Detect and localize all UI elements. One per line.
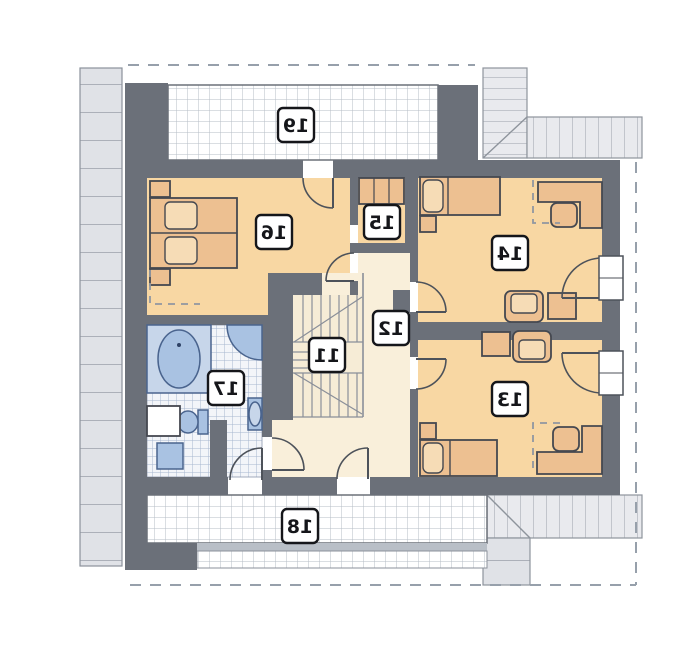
room-label-19-text: 19 bbox=[283, 115, 309, 137]
window-room14 bbox=[599, 256, 623, 300]
roof-ridge-strip-left bbox=[80, 68, 122, 566]
hall-floor-bottom bbox=[272, 417, 410, 477]
room-label-15-text: 15 bbox=[369, 212, 395, 234]
wall-hall-room14-b bbox=[410, 312, 418, 357]
pillow-room16-b bbox=[165, 237, 197, 264]
wall-terrace-upper-right bbox=[438, 85, 478, 160]
bathtub-drain bbox=[177, 343, 181, 347]
armchair-seat-room13 bbox=[519, 340, 545, 359]
room-label-13-text: 13 bbox=[497, 389, 523, 411]
wall-bottom-b bbox=[262, 477, 337, 495]
room-label-16: 16 bbox=[256, 215, 292, 249]
room-label-14: 14 bbox=[492, 236, 528, 270]
room-label-12-text: 12 bbox=[378, 318, 404, 340]
side-table-room13 bbox=[482, 332, 510, 356]
room-label-11: 11 bbox=[309, 338, 345, 372]
pillow-room13 bbox=[423, 443, 443, 473]
terrace-step-edge bbox=[197, 543, 487, 551]
toilet-tank bbox=[198, 410, 208, 434]
floor-plan-page: 19 16 15 14 12 11 17 13 bbox=[0, 0, 700, 665]
wall-bottom-c bbox=[370, 477, 620, 495]
shower-mat bbox=[157, 443, 183, 469]
nightstand-room13 bbox=[420, 423, 436, 439]
wall-bathroom-inner bbox=[210, 420, 227, 477]
wall-stair-top bbox=[268, 273, 322, 295]
room-label-17-text: 17 bbox=[213, 378, 239, 400]
wall-bathroom-right-b bbox=[262, 470, 272, 477]
hall-floor-top bbox=[358, 253, 410, 295]
room-label-18-text: 18 bbox=[287, 516, 313, 538]
wall-stair-side bbox=[268, 295, 293, 420]
terrace-lower-step bbox=[197, 551, 487, 568]
pillow-room16-a bbox=[165, 202, 197, 229]
wall-bottom-a bbox=[125, 477, 228, 495]
room-label-14-text: 14 bbox=[497, 243, 523, 265]
room-label-18: 18 bbox=[282, 509, 318, 543]
room-label-17: 17 bbox=[208, 371, 244, 405]
washing-machine bbox=[147, 406, 180, 436]
wall-room16-hall-b bbox=[350, 281, 358, 295]
wall-spur-hall bbox=[393, 290, 410, 313]
washbasin bbox=[249, 402, 261, 426]
nightstand-room14 bbox=[420, 216, 436, 232]
wall-top-b bbox=[333, 160, 620, 178]
room-label-15: 15 bbox=[364, 205, 400, 239]
wall-hall-room14-a bbox=[410, 253, 418, 282]
wall-room16-room15-a bbox=[350, 160, 358, 225]
desk-chair-room14 bbox=[551, 203, 577, 227]
wall-corner-bottom-left bbox=[125, 543, 197, 570]
wall-room15-right bbox=[405, 175, 418, 253]
room-label-11-text: 11 bbox=[314, 345, 340, 367]
room-label-19: 19 bbox=[278, 108, 314, 142]
armchair-seat-room14 bbox=[511, 294, 537, 313]
window-room13 bbox=[599, 351, 623, 395]
toilet-bowl bbox=[178, 411, 198, 433]
wall-bathroom-top bbox=[147, 315, 268, 325]
pillow-room14 bbox=[423, 180, 443, 212]
room-label-16-text: 16 bbox=[261, 222, 287, 244]
wall-right bbox=[602, 160, 620, 495]
wardrobe-room15 bbox=[359, 178, 404, 204]
wall-hall-room13 bbox=[410, 389, 418, 477]
roof-strip-top-right-vertical bbox=[483, 68, 527, 158]
wall-top-a bbox=[125, 160, 303, 178]
roof-strip-bottom-right-vertical bbox=[483, 538, 530, 585]
roof-strip-top-right-horizontal bbox=[527, 117, 642, 158]
bathtub bbox=[158, 330, 200, 388]
roof-strip-bottom-right-horizontal bbox=[487, 495, 642, 538]
desk-chair-room13 bbox=[553, 427, 579, 451]
nightstand-room16-b bbox=[150, 269, 170, 285]
nightstand-room16-a bbox=[150, 181, 170, 197]
room-label-13: 13 bbox=[492, 382, 528, 416]
wall-terrace-upper-left bbox=[125, 83, 168, 160]
floor-plan-drawing: 19 16 15 14 12 11 17 13 bbox=[0, 0, 700, 665]
room-label-12: 12 bbox=[373, 311, 409, 345]
